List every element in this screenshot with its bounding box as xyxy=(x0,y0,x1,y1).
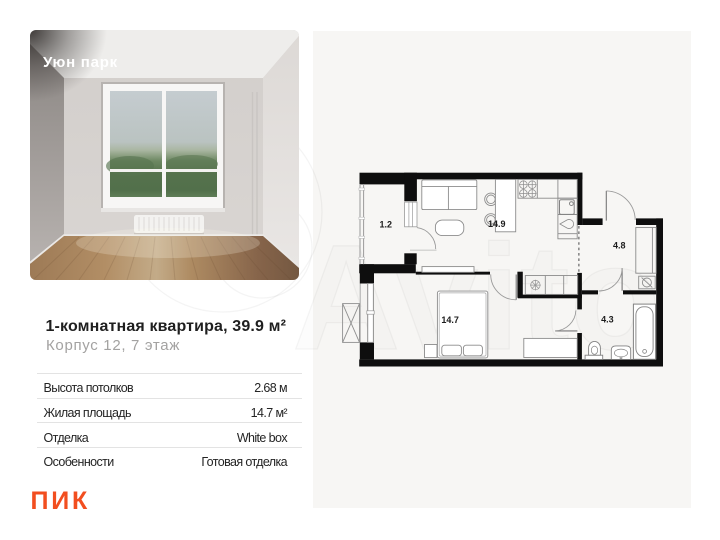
svg-text:1.2: 1.2 xyxy=(379,219,392,229)
svg-text:4.8: 4.8 xyxy=(613,240,626,250)
svg-text:4.3: 4.3 xyxy=(601,315,614,325)
svg-text:14.9: 14.9 xyxy=(488,219,506,229)
svg-text:14.7: 14.7 xyxy=(441,315,459,325)
